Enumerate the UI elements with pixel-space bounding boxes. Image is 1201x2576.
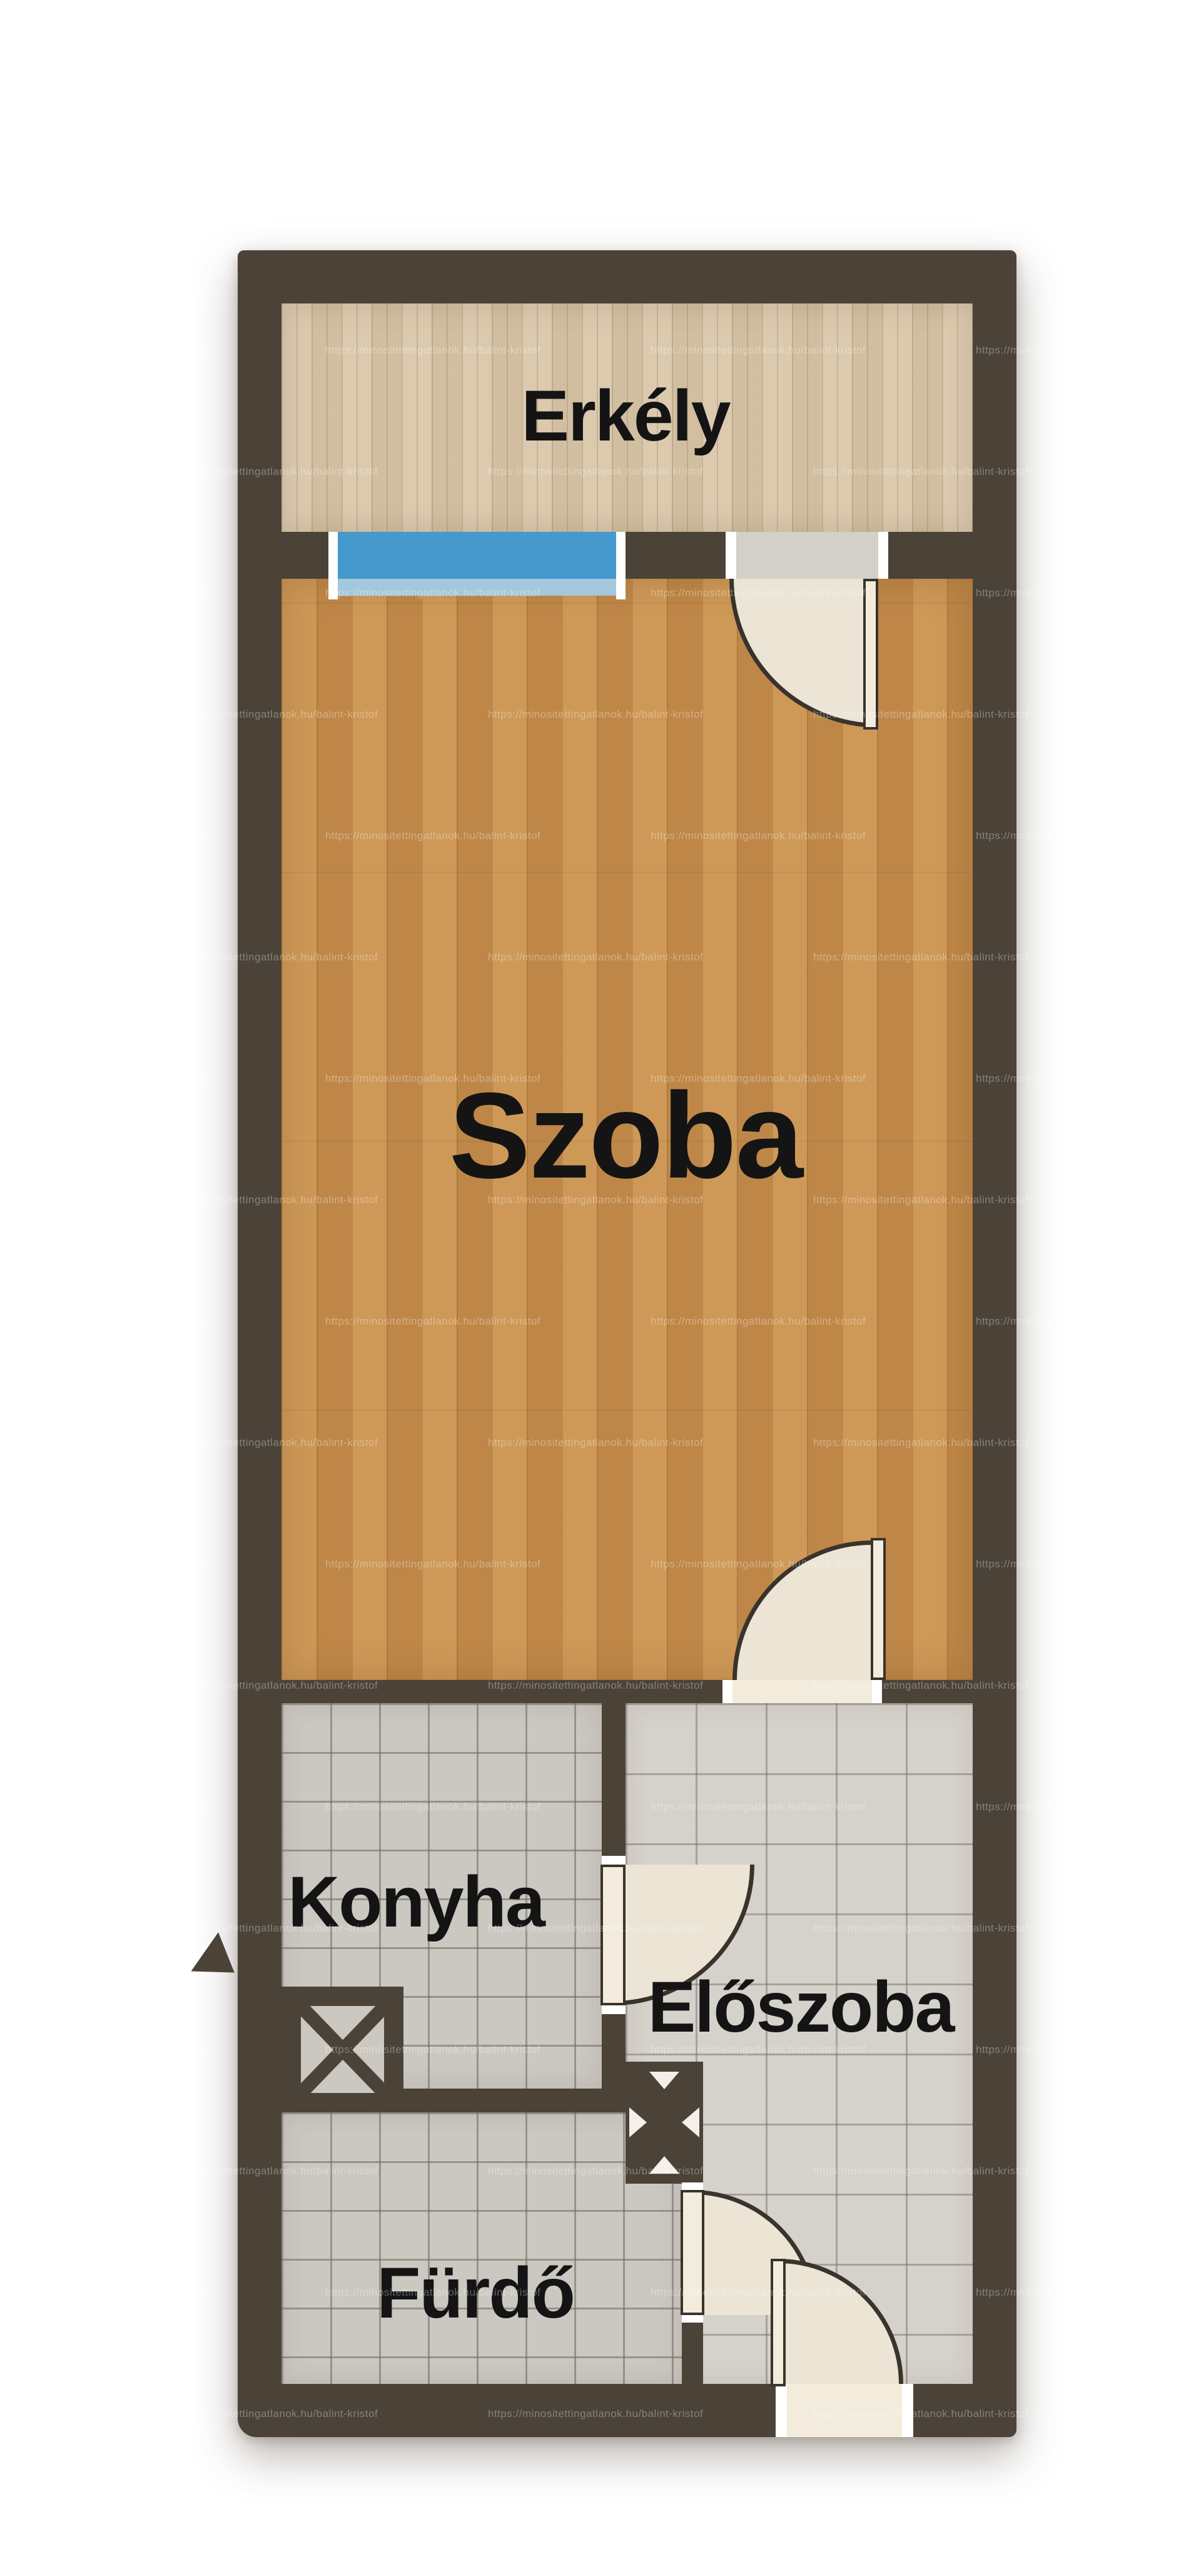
shaft-arrow-right-icon bbox=[629, 2107, 647, 2137]
watermark-text: https://minositettingatlanok.hu/balint-k… bbox=[1138, 2408, 1201, 2420]
watermark-text: https://minositettingatlanok.hu/balint-k… bbox=[0, 951, 53, 964]
watermark-text: https://minositettingatlanok.hu/balint-k… bbox=[0, 830, 215, 842]
watermark-text: https://minositettingatlanok.hu/balint-k… bbox=[0, 1922, 53, 1935]
watermark-text: https://minositettingatlanok.hu/balint-k… bbox=[1138, 1679, 1201, 1692]
watermark-text: https://minositettingatlanok.hu/balint-k… bbox=[325, 101, 540, 114]
watermark-text: https://minositettingatlanok.hu/balint-k… bbox=[1138, 708, 1201, 721]
shaft-arrow-up-icon bbox=[649, 2156, 679, 2174]
watermark-text: https://minositettingatlanok.hu/balint-k… bbox=[651, 101, 866, 114]
watermark-text: https://minositettingatlanok.hu/balint-k… bbox=[0, 1558, 215, 1571]
watermark-text: https://minositettingatlanok.hu/balint-k… bbox=[0, 2529, 215, 2542]
watermark-text: https://minositettingatlanok.hu/balint-k… bbox=[1138, 1437, 1201, 1449]
window-glass bbox=[338, 532, 616, 579]
watermark-text: https://minositettingatlanok.hu/balint-k… bbox=[976, 2529, 1191, 2542]
watermark-text: https://minositettingatlanok.hu/balint-k… bbox=[163, 223, 378, 235]
window-jamb-right bbox=[616, 532, 626, 599]
watermark-text: https://minositettingatlanok.hu/balint-k… bbox=[0, 587, 215, 599]
watermark-text: https://minositettingatlanok.hu/balint-k… bbox=[813, 223, 1028, 235]
shaft-arrow-left-icon bbox=[682, 2107, 699, 2137]
label-kitchen: Konyha bbox=[288, 1861, 544, 1943]
watermark-text: https://minositettingatlanok.hu/balint-k… bbox=[1138, 1194, 1201, 1206]
watermark-text: https://minositettingatlanok.hu/balint-k… bbox=[0, 466, 53, 478]
watermark-text: https://minositettingatlanok.hu/balint-k… bbox=[0, 1194, 53, 1206]
window-sill bbox=[338, 579, 616, 596]
entry-door-jamb-right bbox=[902, 2384, 913, 2437]
label-hall: Előszoba bbox=[648, 1966, 954, 2049]
watermark-text: https://minositettingatlanok.hu/balint-k… bbox=[0, 2044, 215, 2056]
bathroom-door-leaf bbox=[681, 2190, 704, 2315]
watermark-text: https://minositettingatlanok.hu/balint-k… bbox=[0, 2286, 215, 2299]
shaft-wall-block bbox=[626, 2062, 703, 2184]
kitchen-door-leaf bbox=[600, 1865, 626, 2005]
watermark-text: https://minositettingatlanok.hu/balint-k… bbox=[488, 223, 703, 235]
entry-door-threshold bbox=[787, 2384, 902, 2437]
watermark-text: https://minositettingatlanok.hu/balint-k… bbox=[1138, 951, 1201, 964]
label-room: Szoba bbox=[449, 1066, 802, 1206]
watermark-text: https://minositettingatlanok.hu/balint-k… bbox=[0, 344, 215, 357]
room-door-jamb-left bbox=[722, 1680, 732, 1703]
chimney-symbol bbox=[294, 1999, 391, 2100]
shaft-arrow-down-icon bbox=[649, 2072, 679, 2089]
watermark-text: https://minositettingatlanok.hu/balint-k… bbox=[0, 1315, 215, 1328]
bathroom-door-jamb-bottom bbox=[682, 2315, 703, 2323]
watermark-text: https://minositettingatlanok.hu/balint-k… bbox=[325, 2529, 540, 2542]
entry-door-leaf bbox=[771, 2259, 786, 2386]
watermark-text: https://minositettingatlanok.hu/balint-k… bbox=[1138, 2165, 1201, 2177]
watermark-text: https://minositettingatlanok.hu/balint-k… bbox=[0, 2165, 53, 2177]
label-bathroom: Fürdő bbox=[377, 2252, 574, 2334]
floorplan-canvas: Erkély Szoba Konyha Előszoba Fürdő https… bbox=[0, 0, 1201, 2576]
watermark-text: https://minositettingatlanok.hu/balint-k… bbox=[0, 1679, 53, 1692]
label-balcony: Erkély bbox=[521, 375, 729, 457]
watermark-text: https://minositettingatlanok.hu/balint-k… bbox=[0, 2408, 53, 2420]
bathroom-floor bbox=[281, 2112, 682, 2384]
balcony-door-jamb-right bbox=[878, 532, 888, 579]
watermark-text: https://minositettingatlanok.hu/balint-k… bbox=[0, 1801, 215, 1813]
balcony-door-leaf bbox=[863, 579, 878, 730]
room-door-leaf bbox=[871, 1538, 886, 1680]
balcony-door-threshold bbox=[736, 532, 878, 579]
watermark-text: https://minositettingatlanok.hu/balint-k… bbox=[0, 708, 53, 721]
watermark-text: https://minositettingatlanok.hu/balint-k… bbox=[1138, 466, 1201, 478]
kitchen-door-jamb-top bbox=[602, 1856, 626, 1865]
bathroom-door-jamb-top bbox=[682, 2182, 703, 2190]
balcony-door-jamb-left bbox=[726, 532, 736, 579]
room-door-jamb-right bbox=[872, 1680, 882, 1703]
watermark-text: https://minositettingatlanok.hu/balint-k… bbox=[0, 1437, 53, 1449]
watermark-text: https://minositettingatlanok.hu/balint-k… bbox=[0, 101, 215, 114]
watermark-text: https://minositettingatlanok.hu/balint-k… bbox=[1138, 1922, 1201, 1935]
room-door-threshold bbox=[732, 1680, 872, 1703]
watermark-text: https://minositettingatlanok.hu/balint-k… bbox=[651, 2529, 866, 2542]
window-jamb-left bbox=[328, 532, 338, 599]
kitchen-door-jamb-bottom bbox=[602, 2005, 626, 2014]
watermark-text: https://minositettingatlanok.hu/balint-k… bbox=[1138, 223, 1201, 235]
watermark-text: https://minositettingatlanok.hu/balint-k… bbox=[0, 1072, 215, 1085]
entry-door-jamb-left bbox=[776, 2384, 787, 2437]
watermark-text: https://minositettingatlanok.hu/balint-k… bbox=[976, 101, 1191, 114]
watermark-text: https://minositettingatlanok.hu/balint-k… bbox=[0, 223, 53, 235]
